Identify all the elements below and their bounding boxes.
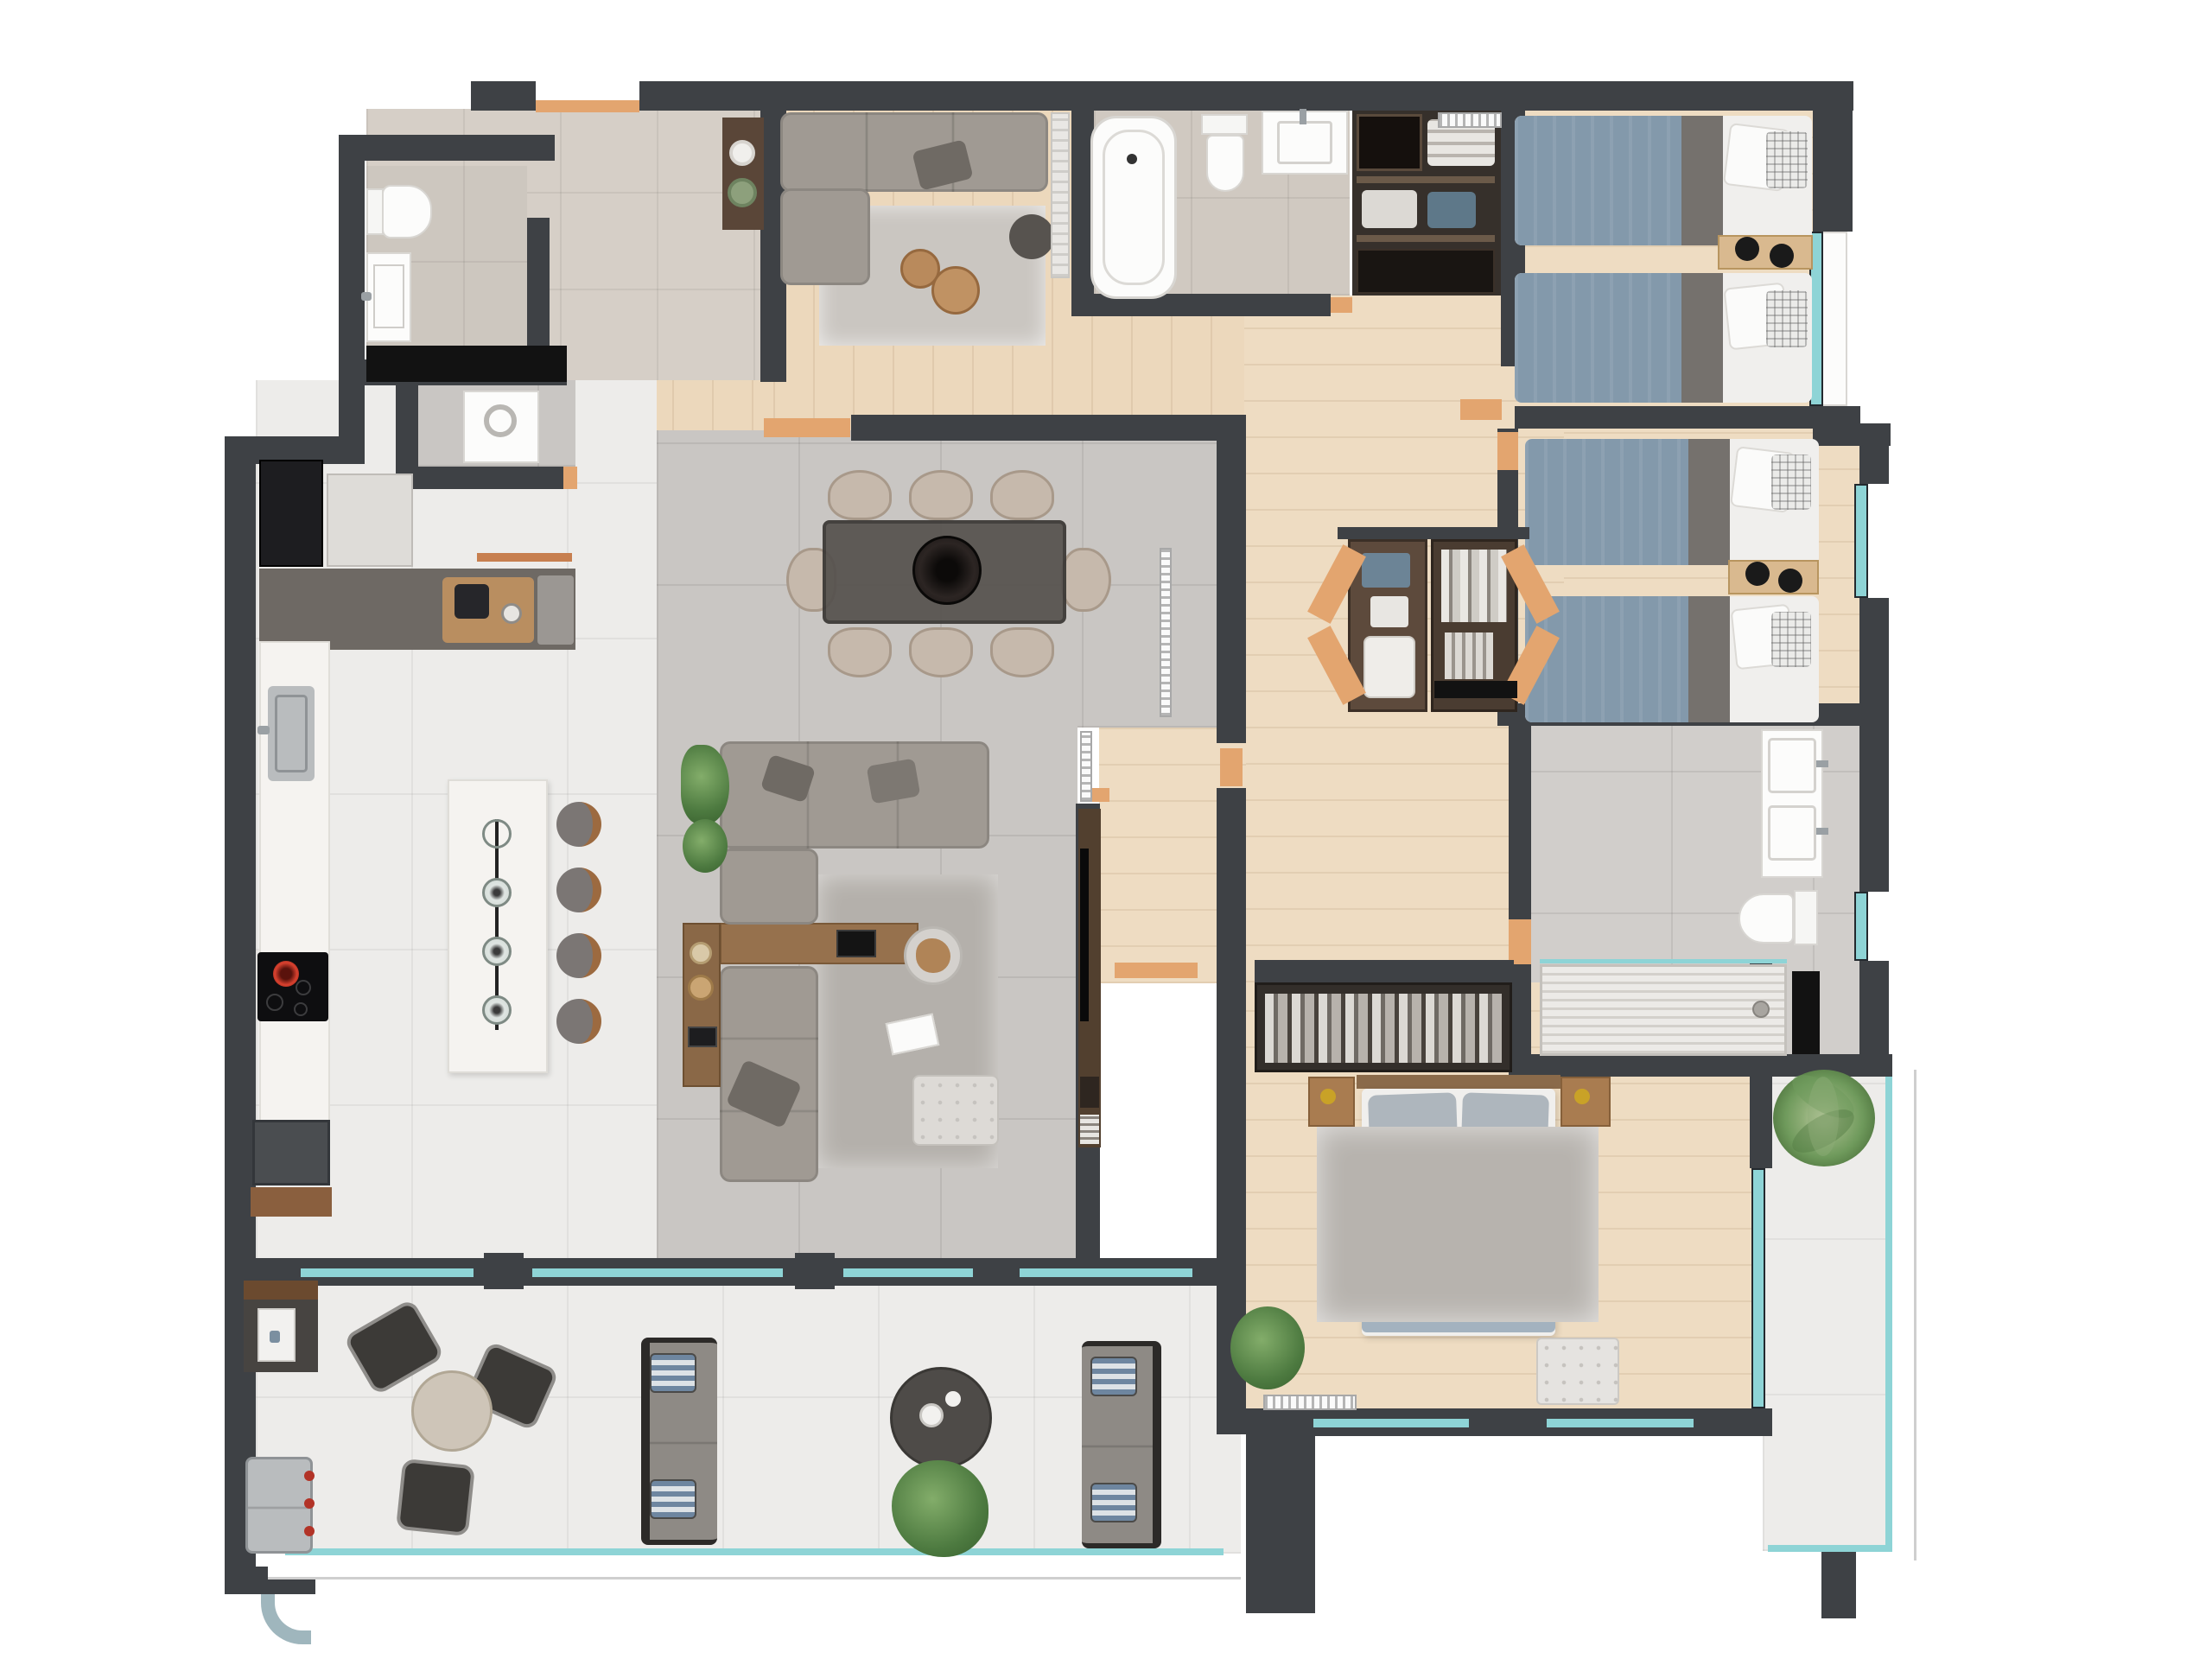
powder-toilet-tank — [366, 188, 384, 235]
wardrobe-pillow-stack — [1363, 636, 1415, 698]
wall-left-main — [225, 436, 256, 1594]
wall-bottom-stub — [1246, 1436, 1315, 1613]
master-closet-clothes — [1265, 994, 1502, 1063]
master-south-window-1 — [1313, 1419, 1469, 1427]
utility-door-threshold — [563, 467, 577, 489]
wall-closet-top — [1255, 960, 1514, 982]
shower-glass — [1540, 959, 1787, 963]
dining-chair-top-1 — [828, 470, 892, 520]
dining-radiator — [1160, 548, 1172, 717]
kitchen-wood-shelf — [251, 1187, 332, 1217]
console-bowl-2 — [688, 975, 714, 1001]
loveseat-left-pillow-2 — [650, 1479, 696, 1519]
wall-right-b2-b — [1859, 598, 1889, 892]
entrance-threshold — [536, 100, 639, 112]
master-bench — [1536, 1338, 1619, 1405]
dining-chair-top-2 — [909, 470, 973, 520]
bistro-chair-3 — [396, 1459, 475, 1536]
wardrobe-vent — [1434, 681, 1517, 698]
bath2-door-threshold — [1509, 919, 1531, 964]
living-plant-top — [681, 745, 729, 824]
cooktop-burner-3 — [294, 1002, 308, 1016]
cutting-board — [537, 575, 574, 645]
cooktop-burner-on — [273, 961, 299, 987]
bbq-knob-3 — [304, 1526, 315, 1536]
floor-plan-canvas — [0, 0, 2212, 1659]
cooktop-burner-2 — [296, 980, 311, 995]
bedroom1-bed-b-duvet — [1515, 273, 1688, 403]
bath1-toilet-tank — [1201, 114, 1248, 135]
wall-right-b2-a — [1859, 446, 1889, 484]
hall-door-threshold — [1220, 748, 1243, 786]
wall-master-right-bottom — [1750, 1408, 1772, 1436]
bedroom1-bed-a-duvet — [1515, 116, 1688, 245]
dining-chair-bottom-2 — [909, 627, 973, 677]
console-bowl-1 — [690, 942, 712, 964]
master-south-window-2 — [1547, 1419, 1694, 1427]
coffee-grinder — [501, 603, 522, 624]
outdoor-table-cup-1 — [919, 1403, 944, 1427]
balcony-railing-frame — [268, 1557, 1241, 1580]
bedroom1-bed-a-pillow2 — [1766, 131, 1808, 188]
loveseat-left-pillow-1 — [650, 1353, 696, 1393]
bedroom2-nightstand — [1728, 560, 1819, 594]
south-window-1 — [301, 1268, 474, 1277]
console-decor-plate — [729, 140, 755, 166]
loveseat-right-pillow-1 — [1090, 1357, 1137, 1396]
kitchen-sink-faucet — [257, 726, 270, 734]
powder-counter — [366, 346, 567, 382]
bedroom1-nightstand — [1718, 235, 1813, 270]
wardrobe-hanging-clothes-2 — [1445, 632, 1493, 679]
master-plant — [1230, 1306, 1305, 1389]
master-rug — [1317, 1127, 1599, 1322]
south-window-2 — [532, 1268, 783, 1277]
bedroom2-bed-a-foldband — [1688, 439, 1730, 565]
dining-door-threshold — [764, 418, 850, 437]
wall-utility-bottom — [396, 467, 577, 489]
bedroom2-window — [1854, 484, 1868, 598]
bbq-knob-1 — [304, 1471, 315, 1481]
media-shelf-decor — [1080, 1077, 1099, 1108]
balcony-railing-glass — [285, 1548, 1224, 1555]
living-sofa-top — [720, 741, 989, 849]
bedroom1-door-threshold — [1460, 399, 1502, 420]
powder-sink-basin — [373, 264, 404, 328]
bath2-niche — [1792, 971, 1820, 1054]
side-balcony-railing-glass — [1885, 1077, 1892, 1552]
bath2-faucet-1 — [1816, 760, 1828, 767]
bar-stool-3 — [556, 933, 601, 978]
fridge — [259, 460, 323, 567]
bbq-knob-2 — [304, 1498, 315, 1509]
wall-south-pier-1 — [484, 1253, 524, 1289]
linen-closet-box — [1357, 114, 1422, 171]
linen-towels-mid — [1362, 190, 1417, 228]
den-coffee-table-2 — [931, 266, 980, 315]
bedroom2-lamp-1 — [1745, 562, 1770, 586]
outdoor-sink-faucet — [270, 1331, 280, 1343]
linen-basket — [1427, 192, 1476, 228]
master-lamp-left — [1320, 1089, 1336, 1104]
console-decor-wreath — [728, 178, 757, 207]
wall-top-main — [471, 81, 1853, 111]
bathtub-drain — [1127, 154, 1137, 164]
living-ottoman — [912, 1075, 999, 1146]
wall-bedroom1-right-corner — [1813, 81, 1853, 232]
living-radiator — [1080, 731, 1092, 802]
bath1-door-threshold — [1331, 297, 1352, 313]
bedroom1-lamp-2 — [1770, 244, 1794, 268]
master-headboard — [1357, 1075, 1560, 1089]
bedroom2-door-threshold — [1497, 432, 1518, 470]
wall-hall-dining-b — [1217, 788, 1246, 961]
bedroom2-bed-b-foldband — [1688, 596, 1730, 722]
pendant-light-2 — [482, 878, 512, 907]
master-door-threshold — [1115, 963, 1198, 978]
loveseat-right-pillow-2 — [1090, 1483, 1137, 1522]
media-shelf-books — [1080, 1115, 1099, 1144]
linen-drawer — [1357, 249, 1495, 294]
south-window-4 — [1020, 1268, 1192, 1277]
bath1-sink-basin — [1277, 121, 1332, 164]
wall-dining-top — [851, 415, 1246, 441]
cooktop-burner-1 — [266, 994, 283, 1011]
bath2-basin-2 — [1768, 805, 1816, 861]
console-books — [688, 1027, 717, 1047]
living-hall-threshold — [1092, 788, 1109, 802]
bedroom1-radiator — [1438, 112, 1502, 128]
master-lamp-right — [1574, 1089, 1590, 1104]
living-shelf-tray — [720, 923, 918, 964]
master-radiator — [1263, 1395, 1357, 1410]
bedroom2-bed-a-pillow2 — [1771, 454, 1811, 510]
den-pouf — [1009, 214, 1054, 259]
wall-right-b2-c — [1859, 961, 1889, 1058]
wall-powder-top — [339, 135, 555, 161]
bedroom2-bed-a-duvet — [1525, 439, 1694, 565]
den-tall-cabinet — [1051, 112, 1070, 278]
bath2-toilet-tank — [1794, 890, 1818, 945]
living-sofa-side — [720, 849, 818, 925]
built-in-cabinet — [327, 474, 413, 567]
wall-powder-left-ext — [339, 359, 365, 464]
washing-machine-door — [484, 404, 517, 437]
wardrobe-top-wall — [1338, 527, 1529, 539]
master-sliding-door — [1751, 1168, 1765, 1408]
bbq-grill — [245, 1457, 313, 1554]
den-sofa-chaise — [780, 188, 870, 285]
powder-sink-faucet — [361, 292, 372, 301]
pendant-light-3 — [482, 937, 512, 966]
powder-toilet-bowl — [382, 185, 432, 238]
pendant-light-1 — [482, 819, 512, 849]
shower-tray — [1540, 964, 1787, 1056]
pendant-light-4 — [482, 995, 512, 1025]
bedroom1-bed-b-foldband — [1681, 273, 1723, 403]
side-balcony-railing-frame — [1892, 1070, 1916, 1560]
wardrobe-folded-white — [1370, 596, 1408, 627]
wall-bedroom-divider — [1515, 406, 1860, 429]
bar-stool-2 — [556, 868, 601, 912]
bar-stool-4 — [556, 999, 601, 1044]
dining-chair-bottom-3 — [990, 627, 1054, 677]
linen-shelf-1 — [1357, 176, 1495, 183]
wall-south-pier-2 — [795, 1253, 835, 1289]
bath1-sink-faucet — [1300, 109, 1306, 124]
bedroom1-bed-a-foldband — [1681, 116, 1723, 245]
bedroom2-bed-b-pillow2 — [1771, 612, 1811, 667]
dining-chair-right — [1061, 548, 1111, 612]
dining-chair-top-3 — [990, 470, 1054, 520]
wall-side-balcony-pier — [1821, 1551, 1856, 1618]
bathtub-inner — [1103, 130, 1165, 285]
bath2-toilet-bowl — [1738, 893, 1794, 944]
coffee-machine — [454, 584, 489, 619]
kitchen-base-cabinet — [252, 1120, 330, 1185]
wall-powder-left — [339, 135, 365, 387]
wardrobe-folded-blue — [1362, 553, 1410, 588]
bathroom2-window — [1854, 892, 1868, 961]
tv-screen — [1080, 849, 1089, 1021]
bath2-basin-1 — [1768, 738, 1816, 793]
downspout-icon — [261, 1594, 311, 1644]
bistro-table — [411, 1370, 493, 1452]
living-coffee-table-tray — [916, 938, 950, 973]
wardrobe-hanging-clothes — [1441, 550, 1507, 622]
dining-centerpiece — [912, 536, 982, 605]
utensil-rail — [477, 553, 572, 562]
wall-powder-right — [527, 218, 550, 363]
outdoor-cabinet — [244, 1281, 318, 1300]
linen-shelf-2 — [1357, 235, 1495, 242]
succulent-leaf-3 — [1808, 1077, 1839, 1156]
side-balcony-railing-bottom — [1768, 1545, 1889, 1552]
south-window-3 — [843, 1268, 973, 1277]
outdoor-table-cup-2 — [945, 1391, 961, 1407]
bedroom1-bed-b-pillow2 — [1766, 290, 1808, 347]
dining-chair-bottom-1 — [828, 627, 892, 677]
living-shelf-tablet — [836, 930, 876, 957]
shower-drain — [1752, 1001, 1770, 1018]
wall-hall-dining-a — [1217, 430, 1246, 743]
kitchen-sink-basin — [275, 695, 308, 772]
bedroom1-lamp-1 — [1735, 237, 1759, 261]
bar-stool-1 — [556, 802, 601, 847]
console-table — [722, 118, 764, 230]
bath2-faucet-2 — [1816, 828, 1828, 835]
bath1-toilet-bowl — [1206, 135, 1244, 192]
bedroom2-lamp-2 — [1778, 569, 1802, 593]
living-plant-bottom — [683, 819, 728, 873]
